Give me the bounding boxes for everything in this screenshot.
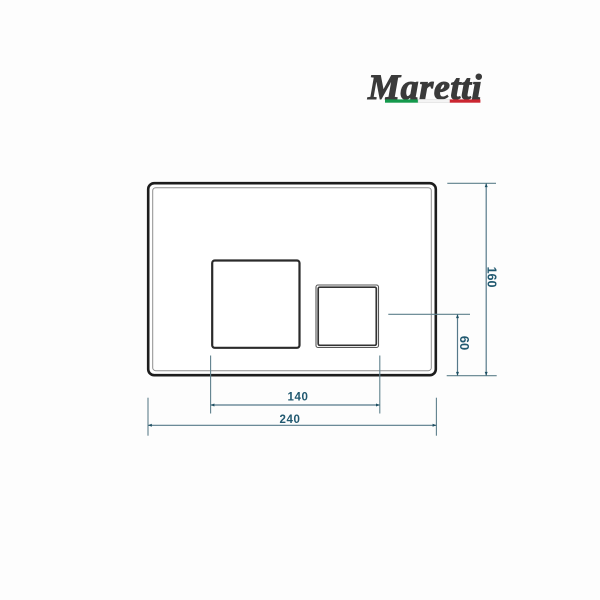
- svg-text:140: 140: [288, 392, 309, 404]
- svg-text:240: 240: [280, 414, 301, 426]
- svg-text:60: 60: [457, 336, 472, 350]
- svg-text:160: 160: [485, 267, 499, 288]
